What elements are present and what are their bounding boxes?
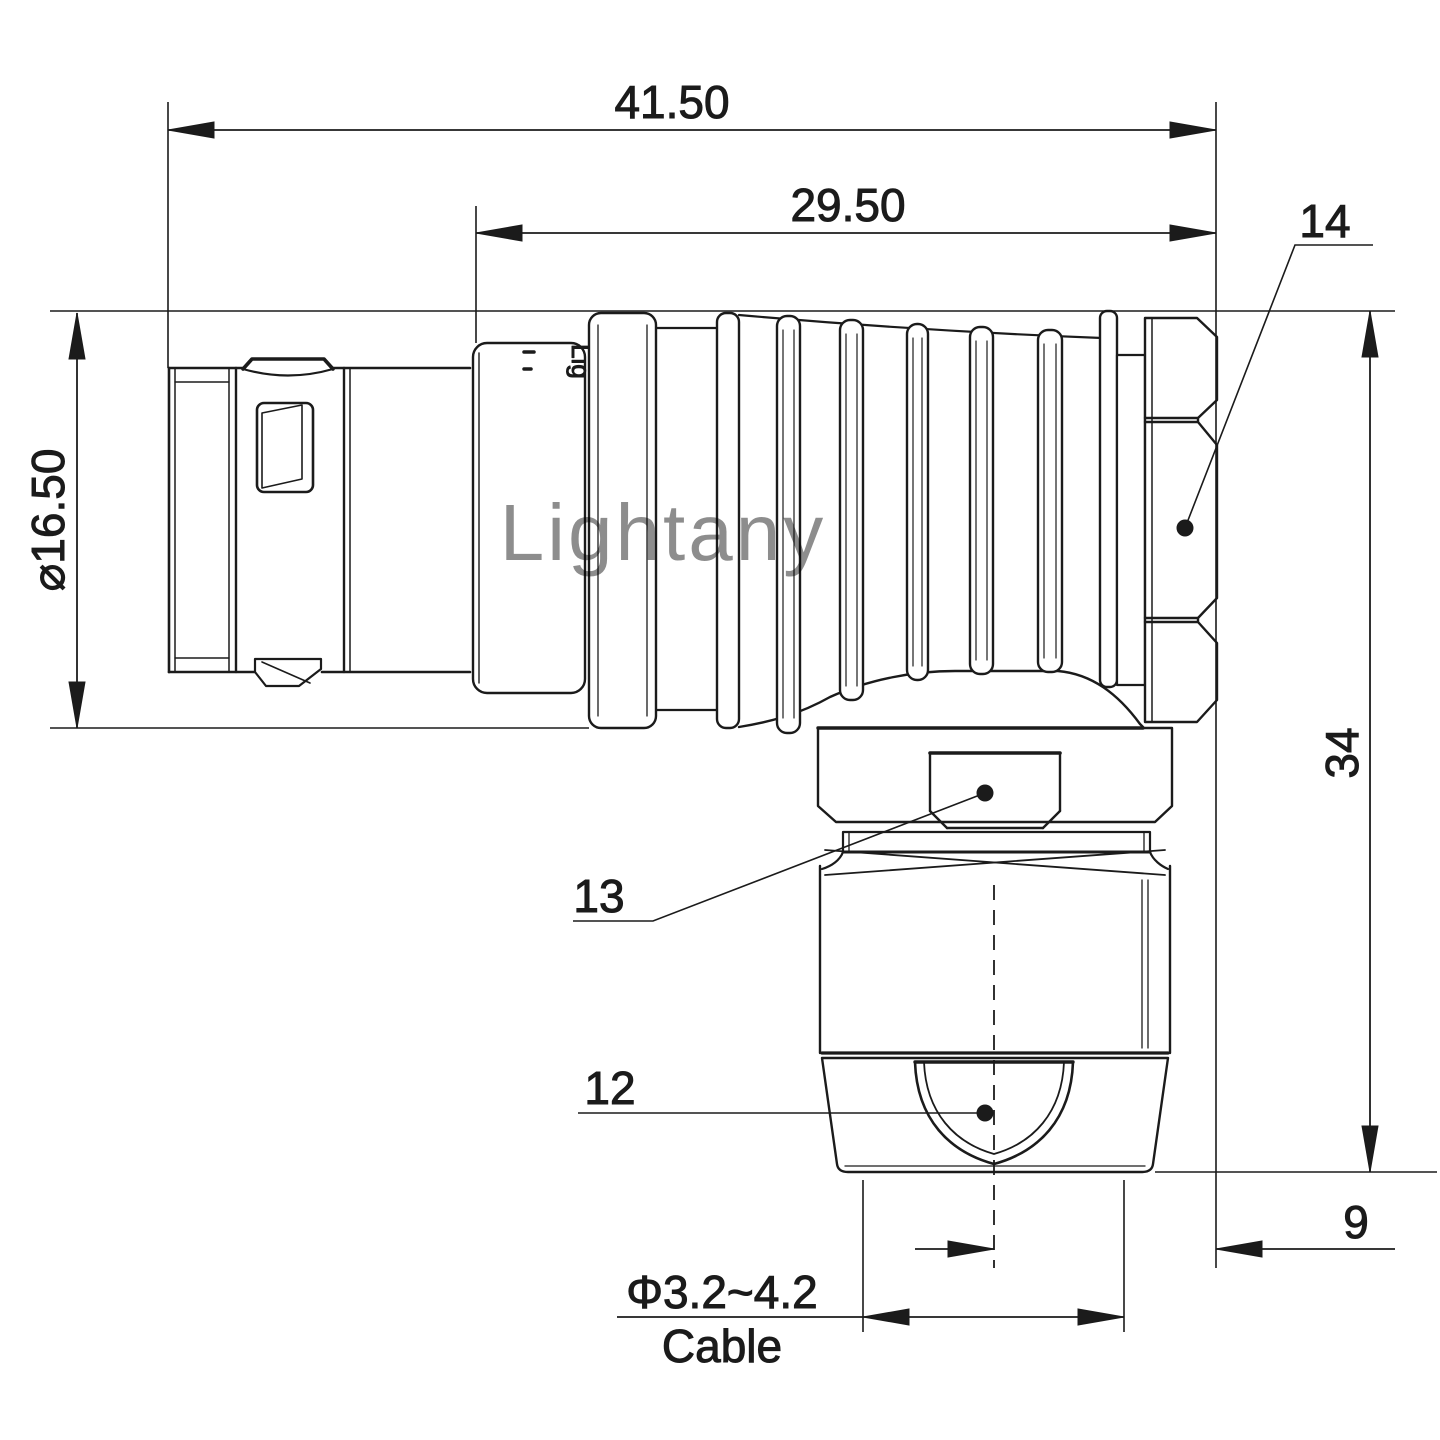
dim-axis-offset-text: 9 (1343, 1196, 1369, 1248)
dim-axis-offset: 9 (915, 1196, 1395, 1257)
thread-neck (825, 832, 1165, 875)
cable-word-text: Cable (662, 1320, 782, 1372)
dim-overall-length: 41.50 (168, 76, 1216, 138)
cable-sleeve (820, 852, 1170, 1058)
leader-dot-13 (977, 785, 994, 802)
dim-cable-diameter-text: Φ3.2~4.2 (626, 1266, 817, 1318)
callout-back-nut-text: 14 (1299, 195, 1350, 247)
connector-part: Lig (169, 311, 1217, 1172)
watermark-text: Lightany (500, 488, 826, 577)
leader-dot-12 (977, 1105, 994, 1122)
dim-cable-diameter: Φ3.2~4.2 Cable (617, 1266, 1124, 1372)
dim-body-length-text: 29.50 (790, 179, 905, 231)
elbow-body (818, 728, 1172, 828)
dim-shell-diameter: ⌀16.50 (22, 313, 85, 728)
cable-clamp-nut (822, 1058, 1168, 1172)
drawing-canvas: Lig (0, 0, 1440, 1440)
bayonet-tab (243, 359, 333, 369)
callout-coupling-hex-text: 13 (573, 870, 624, 922)
dim-body-length: 29.50 (476, 179, 1216, 241)
bayonet-slot (257, 403, 313, 492)
plug-front-shell (169, 359, 470, 686)
dim-shell-diameter-text: ⌀16.50 (22, 449, 74, 592)
dim-overall-length-text: 41.50 (614, 76, 729, 128)
dim-total-height-text: 34 (1316, 727, 1368, 778)
connector-technical-drawing: Lig (0, 0, 1440, 1440)
back-nut-hex (1145, 318, 1217, 722)
callout-cable-clamp-text: 12 (584, 1062, 635, 1114)
leader-dot-14 (1177, 520, 1194, 537)
dim-total-height: 34 (1316, 311, 1378, 1172)
